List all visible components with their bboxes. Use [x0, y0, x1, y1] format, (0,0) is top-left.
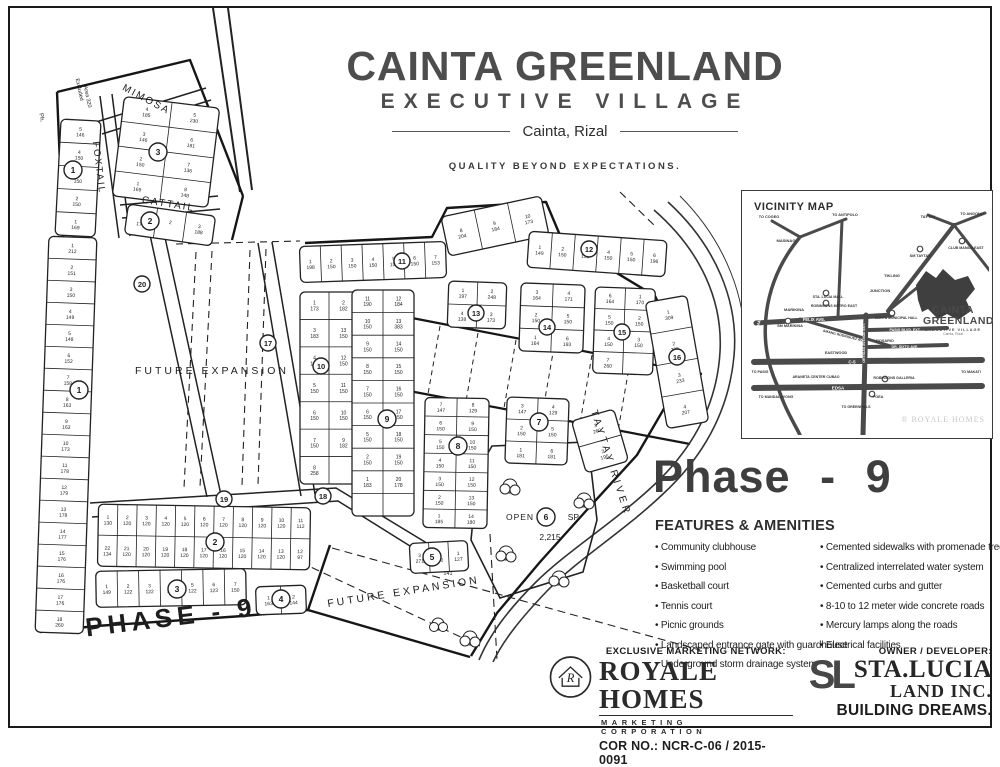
- svg-text:150: 150: [73, 179, 82, 185]
- svg-text:150: 150: [532, 318, 541, 324]
- svg-text:182: 182: [339, 307, 348, 313]
- svg-text:163: 163: [62, 425, 71, 431]
- svg-text:182: 182: [339, 444, 348, 450]
- svg-text:152: 152: [64, 359, 73, 365]
- svg-text:146: 146: [76, 132, 85, 138]
- svg-text:CAINTA MUNICIPAL HALL: CAINTA MUNICIPAL HALL: [874, 316, 918, 320]
- svg-text:150: 150: [369, 263, 378, 269]
- marker-10: 10: [313, 358, 329, 374]
- svg-text:R: R: [566, 671, 575, 685]
- svg-text:180: 180: [467, 520, 476, 526]
- svg-text:MARIKINA: MARIKINA: [784, 307, 804, 312]
- svg-text:144: 144: [289, 600, 298, 606]
- svg-text:130: 130: [104, 521, 113, 527]
- feature-item: Basketball court: [655, 577, 847, 597]
- svg-text:150: 150: [72, 202, 81, 208]
- svg-text:JUNCTION: JUNCTION: [870, 288, 891, 293]
- svg-text:120: 120: [277, 524, 286, 530]
- svg-text:153: 153: [431, 260, 440, 266]
- svg-text:12: 12: [585, 245, 593, 254]
- marker-14: 14: [539, 319, 555, 335]
- royale-homes-watermark: ® ROYALE HOMES: [880, 415, 985, 424]
- svg-text:248: 248: [487, 295, 496, 301]
- svg-text:TO COGEO: TO COGEO: [759, 215, 779, 219]
- svg-text:ORTIGAS AVENUE EXT.: ORTIGAS AVENUE EXT.: [862, 323, 866, 363]
- svg-text:230: 230: [189, 118, 198, 125]
- svg-text:127: 127: [454, 557, 463, 563]
- svg-text:149: 149: [103, 590, 112, 596]
- project-title-line2: EXECUTIVE VILLAGE: [330, 90, 800, 114]
- sta-lucia-logo-icon: SL: [809, 658, 852, 692]
- marker-20: 20: [134, 276, 150, 292]
- svg-text:ROBINSONS GALLERIA: ROBINSONS GALLERIA: [873, 376, 915, 380]
- marker-3: 3: [149, 143, 167, 161]
- svg-text:FUTURE EXPANSION: FUTURE EXPANSION: [327, 574, 481, 610]
- svg-text:181: 181: [186, 143, 195, 150]
- marker-4: 4: [272, 590, 290, 608]
- svg-text:129: 129: [469, 408, 478, 414]
- marker-7: 7: [530, 413, 548, 431]
- svg-text:150: 150: [339, 389, 348, 395]
- svg-text:184: 184: [394, 302, 403, 308]
- svg-text:258: 258: [310, 471, 319, 477]
- marker-13: 13: [468, 305, 484, 321]
- svg-text:198: 198: [306, 265, 315, 271]
- svg-text:123: 123: [210, 588, 219, 594]
- svg-text:TO MANDALUYONG: TO MANDALUYONG: [759, 395, 794, 399]
- marker-1: 1: [64, 161, 82, 179]
- svg-text:150: 150: [363, 347, 372, 353]
- svg-text:150: 150: [604, 255, 613, 262]
- masthead: CAINTA GREENLAND EXECUTIVE VILLAGE Caint…: [330, 46, 800, 172]
- lot-block-2-bottom: 1130212031204120512061207120812091201012…: [97, 504, 310, 570]
- svg-text:120: 120: [199, 553, 208, 559]
- svg-text:10: 10: [317, 362, 325, 371]
- svg-text:122: 122: [124, 589, 133, 595]
- svg-text:120: 120: [238, 554, 247, 560]
- svg-text:150: 150: [310, 389, 319, 395]
- svg-text:136: 136: [183, 168, 192, 175]
- svg-text:150: 150: [363, 415, 372, 421]
- svg-text:C-5: C-5: [848, 360, 856, 365]
- svg-text:PASIG BLVD. EXT.: PASIG BLVD. EXT.: [889, 328, 920, 332]
- svg-text:183: 183: [363, 483, 372, 489]
- vicinity-map-panel: TO COGEOTO ANTIPOLOMASINAGTAYTAYTO ANGON…: [741, 190, 993, 439]
- svg-text:MASINAG: MASINAG: [777, 238, 796, 243]
- svg-text:120: 120: [258, 523, 267, 529]
- marker-12: 12: [581, 241, 597, 257]
- divider-line: [620, 131, 738, 132]
- vicinity-logo-line4: Cainta, Rizal: [923, 333, 983, 337]
- location-divider: Cainta, Rizal: [330, 123, 800, 140]
- svg-text:120: 120: [257, 554, 266, 560]
- marker-17: 17: [260, 335, 276, 351]
- marker-8: 8: [449, 437, 467, 455]
- marker-2: 2: [206, 533, 224, 551]
- svg-text:169: 169: [133, 187, 142, 194]
- svg-text:150: 150: [363, 460, 372, 466]
- owner-name-line1: STA.LUCIA: [854, 658, 992, 682]
- marketing-company-name: ROYALE HOMES: [599, 657, 793, 714]
- owner-developer-block: OWNER / DEVELOPER: SL STA.LUCIA LAND INC…: [809, 646, 992, 720]
- svg-text:150: 150: [436, 426, 445, 432]
- svg-text:134: 134: [103, 552, 112, 558]
- svg-text:173: 173: [310, 307, 319, 313]
- svg-text:196: 196: [650, 259, 659, 266]
- lot-block-10: 1173218231831315041501215051501115061501…: [300, 292, 358, 484]
- svg-text:176: 176: [57, 557, 66, 563]
- svg-text:150: 150: [468, 445, 477, 451]
- marketing-network-text: EXCLUSIVE MARKETING NETWORK: ROYALE HOME…: [599, 646, 793, 767]
- svg-text:185: 185: [435, 519, 444, 525]
- owner-name-line2: LAND INC.: [890, 682, 992, 700]
- svg-text:14: 14: [543, 323, 552, 332]
- phase-heading: Phase - 9: [653, 451, 892, 503]
- lot-block-9: 1119012184101501338391501415081501515071…: [352, 290, 414, 516]
- project-location: Cainta, Rizal: [522, 123, 607, 140]
- project-tagline: QUALITY BEYOND EXPECTATIONS.: [330, 161, 800, 172]
- marketing-network-block: R EXCLUSIVE MARKETING NETWORK: ROYALE HO…: [548, 646, 793, 767]
- svg-text:1: 1: [71, 165, 76, 175]
- svg-text:CLUB MANILA EAST: CLUB MANILA EAST: [948, 246, 984, 250]
- svg-text:11: 11: [398, 257, 406, 266]
- feature-item: Cemented curbs and gutter: [820, 577, 1000, 597]
- svg-text:383: 383: [394, 325, 403, 331]
- svg-text:173: 173: [61, 447, 70, 453]
- svg-text:TAYTAY: TAYTAY: [921, 214, 936, 219]
- svg-text:120: 120: [181, 522, 190, 528]
- svg-text:POEA: POEA: [873, 395, 884, 399]
- lot-block-8: 7147812961509150515010150415011150315012…: [423, 397, 489, 528]
- marker-6: 6: [537, 508, 555, 526]
- svg-text:DR. SIXTO AVE.: DR. SIXTO AVE.: [892, 345, 919, 349]
- svg-text:18: 18: [319, 492, 327, 501]
- cor-number: COR NO.: NCR-C-06 / 2015-0091: [599, 739, 793, 767]
- svg-text:TO ANTIPOLO: TO ANTIPOLO: [832, 213, 858, 217]
- royale-homes-logo-icon: R: [548, 650, 593, 704]
- svg-text:SM TAYTAY: SM TAYTAY: [910, 254, 931, 258]
- svg-text:176: 176: [57, 579, 66, 585]
- svg-text:120: 120: [277, 555, 286, 561]
- vicinity-map-title: VICINITY MAP: [754, 201, 834, 213]
- svg-text:TO ANGONO: TO ANGONO: [960, 212, 983, 216]
- svg-text:150: 150: [627, 257, 636, 264]
- svg-text:150: 150: [348, 263, 357, 269]
- svg-text:149: 149: [66, 315, 75, 321]
- svg-text:171: 171: [564, 297, 573, 303]
- svg-text:120: 120: [122, 552, 131, 558]
- svg-text:17: 17: [264, 339, 272, 348]
- svg-text:212: 212: [68, 249, 77, 255]
- marker-3: 3: [168, 580, 186, 598]
- svg-text:150: 150: [394, 370, 403, 376]
- svg-text:150: 150: [327, 264, 336, 270]
- svg-text:149: 149: [535, 250, 544, 257]
- svg-text:150: 150: [558, 252, 567, 259]
- svg-text:2: 2: [148, 216, 153, 226]
- svg-text:1: 1: [77, 385, 82, 395]
- svg-text:146: 146: [139, 137, 148, 144]
- svg-text:120: 120: [219, 523, 228, 529]
- svg-text:185: 185: [142, 112, 151, 119]
- svg-text:170: 170: [636, 300, 645, 306]
- svg-text:SP.: SP.: [568, 512, 581, 522]
- svg-text:150: 150: [467, 501, 476, 507]
- marker-18: 18: [315, 488, 331, 504]
- svg-text:181: 181: [516, 453, 525, 459]
- svg-text:150: 150: [436, 445, 445, 451]
- vicinity-logo-line2: GREENLAND: [923, 316, 983, 327]
- svg-text:177: 177: [58, 535, 67, 541]
- feature-item: Centralized interrelated water system: [820, 558, 1000, 578]
- svg-text:9: 9: [385, 414, 390, 424]
- svg-text:150: 150: [339, 334, 348, 340]
- feature-item: 8-10 to 12 meter wide concrete roads: [820, 597, 1000, 617]
- marker-5: 5: [423, 548, 441, 566]
- svg-text:150: 150: [310, 416, 319, 422]
- svg-text:OPEN: OPEN: [506, 512, 534, 522]
- svg-text:97: 97: [297, 555, 303, 561]
- svg-text:148: 148: [65, 337, 74, 343]
- svg-text:150: 150: [564, 319, 573, 325]
- svg-text:150: 150: [436, 463, 445, 469]
- svg-text:4: 4: [279, 594, 284, 604]
- svg-text:150: 150: [435, 501, 444, 507]
- svg-text:19: 19: [220, 495, 228, 504]
- svg-text:150: 150: [605, 320, 614, 326]
- svg-text:122: 122: [188, 588, 197, 594]
- svg-text:SM MARIKINA: SM MARIKINA: [777, 324, 803, 328]
- svg-text:7: 7: [537, 417, 542, 427]
- svg-text:120: 120: [142, 552, 151, 558]
- feature-item: Community clubhouse: [655, 538, 847, 558]
- svg-text:ROSARIO: ROSARIO: [876, 339, 894, 343]
- svg-text:150: 150: [339, 361, 348, 367]
- features-heading: FEATURES & AMENITIES: [655, 518, 835, 534]
- svg-text:150: 150: [339, 416, 348, 422]
- svg-text:179: 179: [60, 491, 69, 497]
- svg-text:150: 150: [363, 325, 372, 331]
- svg-text:2,215: 2,215: [539, 532, 561, 542]
- svg-text:188: 188: [194, 229, 203, 236]
- svg-text:TO MAKATI: TO MAKATI: [961, 370, 981, 374]
- marker-2: 2: [141, 212, 159, 230]
- svg-text:150: 150: [634, 343, 643, 349]
- lot-block-14: 316441712150515011646193: [519, 283, 585, 353]
- svg-text:150: 150: [468, 464, 477, 470]
- svg-text:150: 150: [363, 438, 372, 444]
- marker-9: 9: [378, 410, 396, 428]
- project-title-line1: CAINTA GREENLAND: [330, 46, 800, 87]
- svg-text:164: 164: [532, 295, 541, 301]
- svg-text:193: 193: [563, 342, 572, 348]
- svg-text:120: 120: [200, 522, 209, 528]
- svg-text:197: 197: [459, 294, 468, 300]
- svg-text:150: 150: [548, 432, 557, 438]
- svg-text:6: 6: [544, 512, 549, 522]
- lot-block-1-column: 1212215131504149514861527158816391631017…: [35, 236, 97, 633]
- svg-text:141: 141: [443, 571, 452, 577]
- svg-text:5: 5: [430, 552, 435, 562]
- svg-text:164: 164: [606, 299, 615, 305]
- svg-text:183: 183: [310, 334, 319, 340]
- svg-text:13: 13: [472, 309, 480, 318]
- svg-text:120: 120: [219, 554, 228, 560]
- vicinity-site-logo: CAINTA GREENLAND EXECUTIVE VILLAGE Caint…: [923, 305, 983, 337]
- svg-text:150: 150: [635, 321, 644, 327]
- svg-text:ARANETA CENTER CUBAO: ARANETA CENTER CUBAO: [792, 375, 839, 379]
- svg-text:TO GREENHILLS: TO GREENHILLS: [841, 405, 871, 409]
- svg-text:120: 120: [123, 521, 132, 527]
- svg-text:150: 150: [411, 261, 420, 267]
- svg-text:150: 150: [394, 460, 403, 466]
- svg-text:TO PASIG: TO PASIG: [752, 370, 769, 374]
- svg-text:STA. LUCIA MALL: STA. LUCIA MALL: [813, 295, 845, 299]
- feature-item: Mercury lamps along the roads: [820, 616, 1000, 636]
- owner-tagline: BUILDING DREAMS.: [837, 702, 993, 720]
- svg-text:173: 173: [487, 318, 496, 324]
- svg-text:Ph.: Ph.: [37, 113, 45, 123]
- feature-item: Swimming pool: [655, 558, 847, 578]
- svg-text:147: 147: [518, 409, 527, 415]
- lot-block-11a: 1198215031504150515061507153: [299, 241, 446, 282]
- svg-text:150: 150: [435, 482, 444, 488]
- svg-text:EASTWOOD: EASTWOOD: [825, 351, 848, 355]
- divider-line: [392, 131, 510, 132]
- marker-15: 15: [614, 324, 630, 340]
- entrance-road: [213, 8, 252, 192]
- svg-text:120: 120: [161, 553, 170, 559]
- svg-text:150: 150: [394, 393, 403, 399]
- svg-text:151: 151: [67, 271, 76, 277]
- lot-block-12: 114921503150415051506196: [527, 231, 667, 277]
- svg-text:3: 3: [156, 147, 161, 157]
- owner-logo-row: SL STA.LUCIA LAND INC.: [809, 658, 992, 700]
- svg-text:169: 169: [71, 225, 80, 231]
- svg-text:150: 150: [310, 444, 319, 450]
- svg-text:150: 150: [468, 427, 477, 433]
- svg-text:260: 260: [603, 363, 612, 369]
- svg-text:2: 2: [213, 537, 218, 547]
- svg-text:8: 8: [456, 441, 461, 451]
- svg-text:EDSA: EDSA: [832, 386, 845, 391]
- marketing-company-subtitle: MARKETING CORPORATION: [599, 715, 793, 736]
- svg-text:178: 178: [60, 469, 69, 475]
- owner-names: STA.LUCIA LAND INC.: [854, 658, 992, 700]
- svg-text:120: 120: [239, 523, 248, 529]
- svg-text:150: 150: [136, 162, 145, 169]
- svg-text:163: 163: [63, 403, 72, 409]
- svg-text:150: 150: [517, 431, 526, 437]
- svg-text:178: 178: [394, 483, 403, 489]
- svg-text:148: 148: [180, 192, 189, 199]
- svg-text:120: 120: [142, 521, 151, 527]
- feature-item: Cemented sidewalks with promenade trees: [820, 538, 1000, 558]
- svg-text:150: 150: [467, 483, 476, 489]
- svg-text:178: 178: [59, 513, 68, 519]
- svg-text:122: 122: [145, 589, 154, 595]
- svg-text:260: 260: [55, 623, 64, 629]
- svg-text:150: 150: [363, 393, 372, 399]
- marker-11: 11: [394, 253, 410, 269]
- marker-16: 16: [669, 349, 685, 365]
- svg-text:138: 138: [458, 317, 467, 323]
- feature-item: Tennis court: [655, 597, 847, 617]
- svg-text:150: 150: [394, 438, 403, 444]
- svg-text:3: 3: [175, 584, 180, 594]
- svg-text:120: 120: [180, 553, 189, 559]
- svg-text:150: 150: [363, 370, 372, 376]
- svg-text:150: 150: [604, 342, 613, 348]
- footer: R EXCLUSIVE MARKETING NETWORK: ROYALE HO…: [548, 646, 992, 722]
- svg-text:FUTURE EXPANSION: FUTURE EXPANSION: [135, 365, 289, 377]
- svg-text:120: 120: [161, 522, 170, 528]
- svg-text:147: 147: [437, 408, 446, 414]
- features-column-2: Cemented sidewalks with promenade treesC…: [820, 538, 1000, 655]
- svg-text:164: 164: [531, 341, 540, 347]
- svg-text:TIKLING: TIKLING: [884, 273, 900, 278]
- svg-text:176: 176: [56, 601, 65, 607]
- svg-text:129: 129: [549, 410, 558, 416]
- svg-text:181: 181: [547, 454, 556, 460]
- marker-1: 1: [70, 381, 88, 399]
- svg-text:15: 15: [618, 328, 626, 337]
- marker-19: 19: [216, 491, 232, 507]
- svg-text:20: 20: [138, 280, 146, 289]
- svg-text:150: 150: [394, 347, 403, 353]
- svg-text:16: 16: [673, 353, 681, 362]
- svg-text:FELIX AVE.: FELIX AVE.: [803, 317, 825, 322]
- svg-text:112: 112: [297, 524, 305, 530]
- svg-text:190: 190: [363, 302, 372, 308]
- svg-text:150: 150: [67, 293, 76, 299]
- feature-item: Picnic grounds: [655, 616, 847, 636]
- svg-text:ROBINSONS METRO EAST: ROBINSONS METRO EAST: [811, 304, 858, 308]
